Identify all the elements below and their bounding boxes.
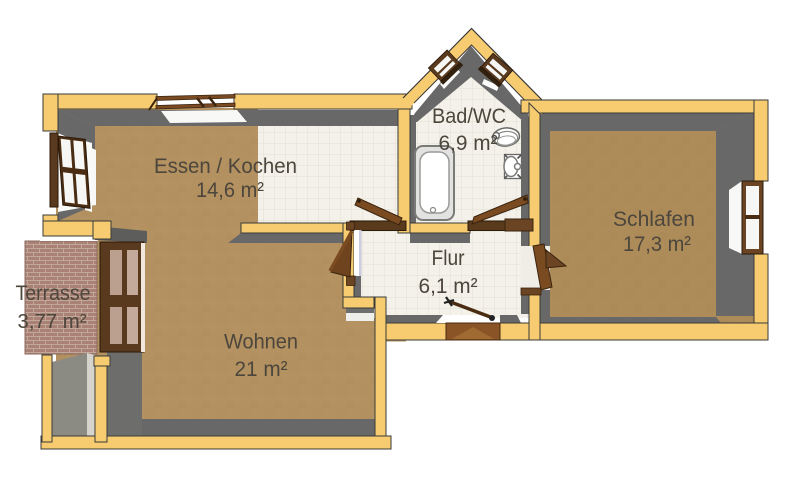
svg-text:17,3 m²: 17,3 m² — [623, 233, 691, 256]
svg-text:6,9 m²: 6,9 m² — [439, 132, 498, 155]
svg-text:Terrasse: Terrasse — [16, 282, 91, 305]
svg-text:Wohnen: Wohnen — [224, 330, 298, 354]
svg-text:Bad/WC: Bad/WC — [432, 104, 506, 128]
svg-text:14,6 m²: 14,6 m² — [196, 179, 264, 202]
svg-text:3,77 m²: 3,77 m² — [18, 310, 87, 333]
svg-text:Schlafen: Schlafen — [613, 207, 695, 231]
svg-text:21 m²: 21 m² — [235, 358, 288, 381]
svg-text:6,1 m²: 6,1 m² — [419, 275, 478, 298]
svg-text:Essen / Kochen: Essen / Kochen — [154, 154, 297, 178]
svg-text:Flur: Flur — [432, 246, 465, 270]
